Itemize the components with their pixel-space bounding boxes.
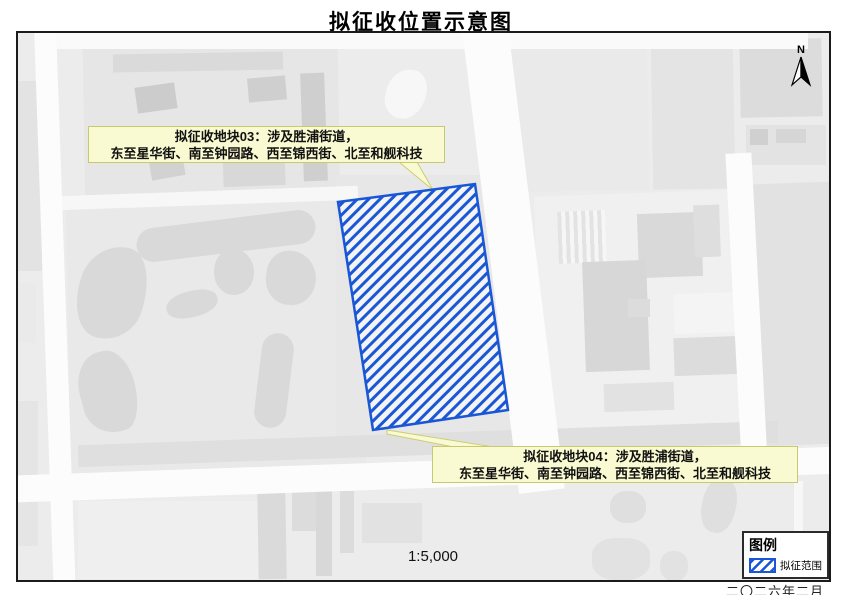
map-building: [292, 491, 316, 531]
map-scale-text: 1:5,000: [383, 548, 483, 565]
map-vegetation: [592, 538, 650, 580]
map-building: [776, 129, 806, 143]
map-building: [604, 382, 675, 412]
date-text: 二〇二六年二月: [726, 581, 824, 595]
map-building: [247, 75, 287, 102]
map-building: [18, 283, 36, 343]
map-parking-rows: [557, 210, 607, 264]
legend-box: 图例 拟征范围: [742, 531, 829, 579]
parcel-04-label-line2: 东至星华街、南至钟园路、西至锦西街、北至和舰科技: [435, 465, 795, 482]
map-background: [18, 33, 829, 580]
map-building: [340, 491, 354, 553]
map-building: [257, 489, 287, 579]
map-parcel: [651, 38, 736, 189]
parcel-03-label-line2: 东至星华街、南至钟园路、西至锦西街、北至和舰科技: [91, 145, 442, 162]
parcel-03-label: 拟征收地块03：涉及胜浦街道， 东至星华街、南至钟园路、西至锦西街、北至和舰科技: [88, 126, 445, 163]
map-building: [134, 82, 177, 113]
map-building: [673, 336, 742, 376]
parcel-04-label-line1: 拟征收地块04：涉及胜浦街道，: [435, 448, 795, 465]
parcel-03-label-line1: 拟征收地块03：涉及胜浦街道，: [91, 128, 442, 145]
map-building: [18, 401, 38, 546]
legend-item-label: 拟征范围: [780, 558, 822, 573]
legend-title: 图例: [749, 535, 822, 555]
map-building: [628, 299, 650, 317]
map-vegetation: [214, 249, 254, 295]
map-vegetation: [697, 475, 742, 536]
map-building: [316, 488, 332, 576]
page: 拟征收位置示意图: [0, 0, 842, 595]
map-road: [48, 33, 808, 49]
map-vegetation: [610, 491, 646, 523]
map-building: [693, 205, 721, 258]
hatch-swatch-icon: [749, 558, 776, 573]
map-building: [113, 52, 283, 73]
map-vegetation: [660, 551, 688, 580]
map-pond: [381, 65, 431, 122]
map-building: [750, 129, 768, 145]
map-plaza: [78, 501, 258, 579]
map-parcel: [318, 493, 563, 580]
legend-item: 拟征范围: [749, 558, 822, 573]
map-frame: [16, 31, 831, 582]
map-building: [362, 503, 422, 543]
map-parcel: [507, 38, 650, 192]
map-building: [739, 38, 822, 117]
parcel-04-label: 拟征收地块04：涉及胜浦街道， 东至星华街、南至钟园路、西至锦西街、北至和舰科技: [432, 446, 798, 483]
